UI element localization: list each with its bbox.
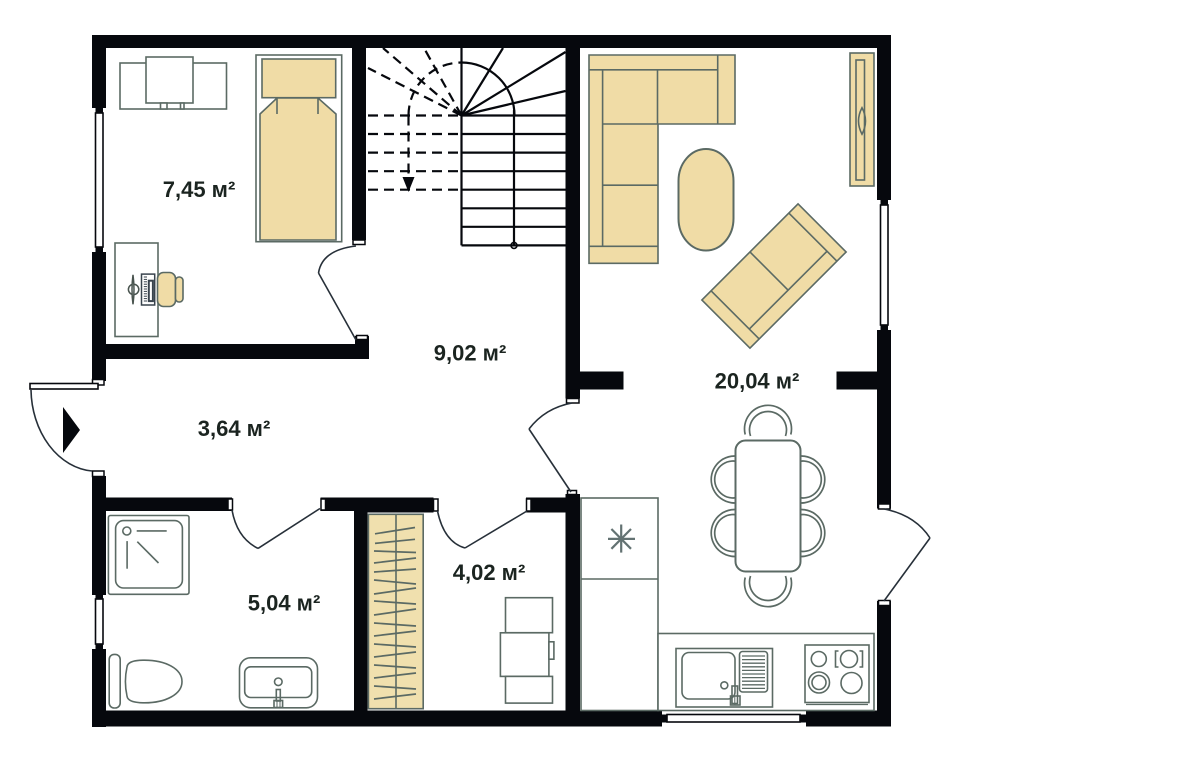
- svg-text:9,02 м²: 9,02 м²: [434, 341, 507, 366]
- svg-text:5,04 м²: 5,04 м²: [248, 591, 321, 616]
- svg-text:3,64 м²: 3,64 м²: [198, 416, 271, 441]
- svg-text:20,04 м²: 20,04 м²: [715, 369, 800, 394]
- svg-text:7,45 м²: 7,45 м²: [163, 177, 236, 202]
- svg-text:4,02 м²: 4,02 м²: [453, 560, 526, 585]
